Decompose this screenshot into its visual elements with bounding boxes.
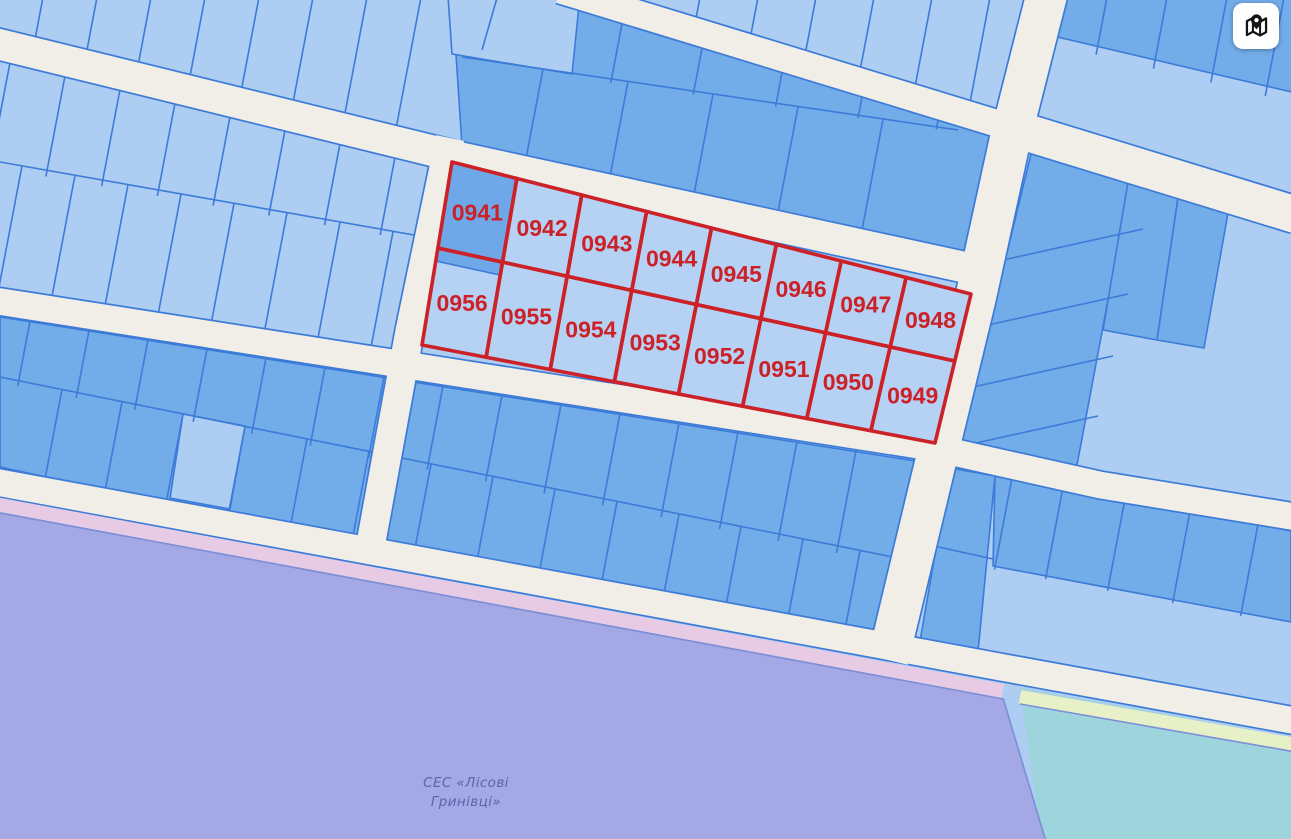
parcel-number-label: 0943 bbox=[581, 230, 632, 256]
parcel-number-label: 0946 bbox=[775, 276, 826, 302]
parcel-number-label: 0947 bbox=[840, 292, 891, 318]
parcel-number-label: 0953 bbox=[630, 330, 681, 356]
parcel-number-label: 0949 bbox=[887, 382, 938, 408]
parcel-number-label: 0952 bbox=[694, 343, 745, 369]
region-label-line2: Гринівці» bbox=[431, 794, 501, 810]
parcel-number-label: 0942 bbox=[516, 215, 567, 241]
parcel-number-label: 0956 bbox=[437, 290, 488, 316]
parcel-number-label: 0941 bbox=[452, 200, 503, 226]
parcel-number-label: 0945 bbox=[711, 261, 762, 287]
map-layers-button[interactable] bbox=[1233, 3, 1279, 49]
region-label-line1: СЕС «Лісові bbox=[423, 775, 509, 791]
parcel-number-label: 0950 bbox=[823, 369, 874, 395]
map-with-pin-icon bbox=[1243, 13, 1270, 40]
parcel-number-label: 0954 bbox=[565, 316, 616, 342]
cadastral-map-canvas[interactable]: 0941095609420955094309540944095309450952… bbox=[0, 0, 1291, 839]
parcel-number-label: 0955 bbox=[501, 303, 552, 329]
parcel-number-label: 0944 bbox=[646, 246, 697, 272]
parcel-number-label: 0948 bbox=[905, 307, 956, 333]
parcel-number-label: 0951 bbox=[758, 356, 809, 382]
map-viewport[interactable]: 0941095609420955094309540944095309450952… bbox=[0, 0, 1291, 839]
